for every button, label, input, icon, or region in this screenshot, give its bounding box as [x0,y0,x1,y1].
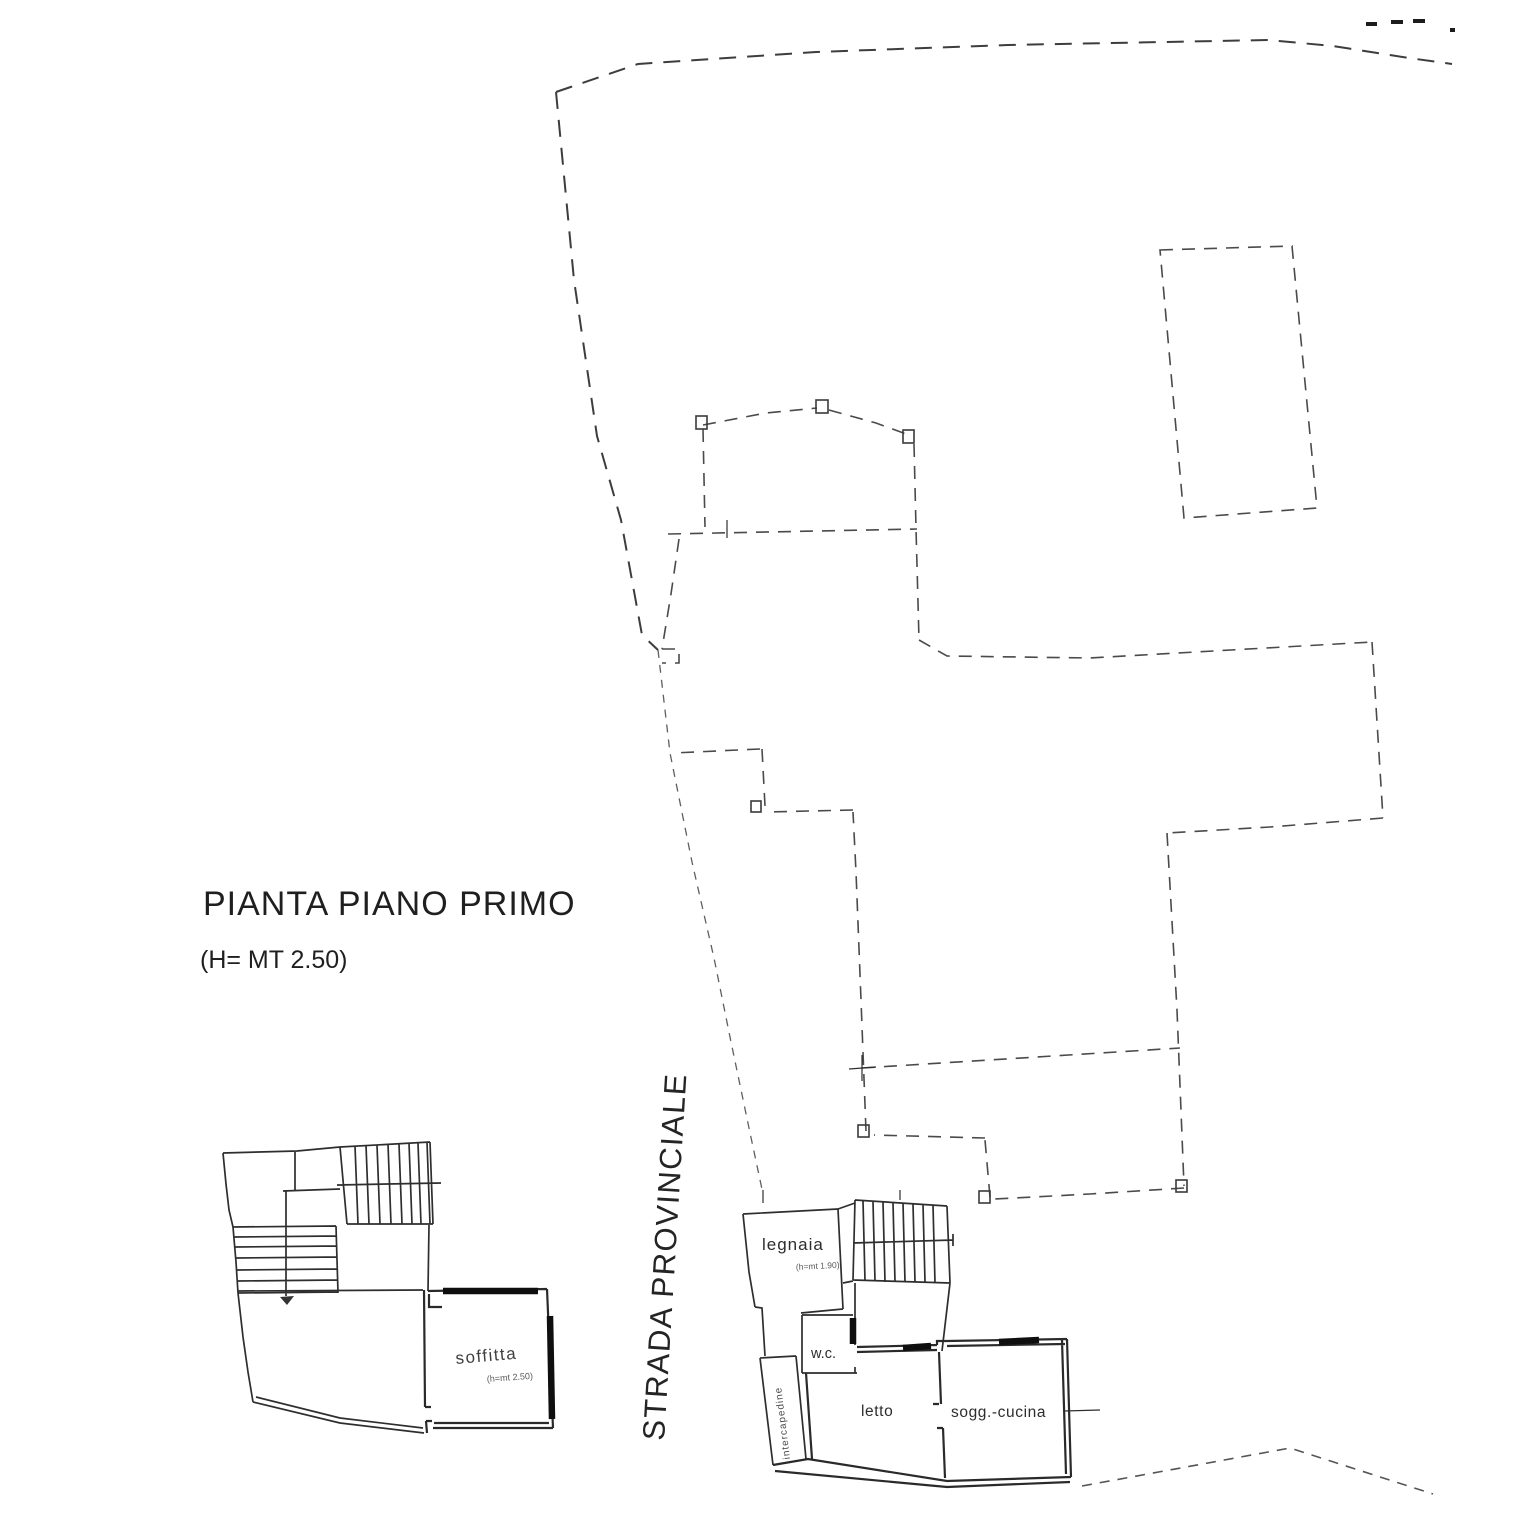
attic-plan [223,1142,553,1433]
attic-stair-risers [355,1142,430,1224]
soffitta-label: soffitta [455,1344,518,1368]
survey-square-markers [696,400,1187,1203]
building-outline-dashed [668,408,1383,1199]
legnaia-height-note: (h=mt 1.90) [796,1260,840,1272]
plan-title: PIANTA PIANO PRIMO [203,885,576,923]
road-label: STRADA PROVINCIALE [636,1072,693,1442]
stair-direction-arrow [280,1296,294,1305]
sogg-cucina-label: sogg.-cucina [951,1404,1046,1421]
top-right-specks [1366,21,1455,30]
site-boundary-dashed [556,40,1452,650]
boundary-branch-dashed [662,539,679,663]
legnaia-walls [743,1209,843,1356]
intercapedine-label: intercapedine [773,1386,793,1460]
parcel-rectangle-dashed [1160,246,1317,518]
survey-tick-marks [727,520,900,1203]
wc-walls [802,1315,857,1373]
letto-label: letto [861,1403,893,1420]
attic-stair-treads [233,1152,340,1296]
floor-plan-sheet: PIANTA PIANO PRIMO (H= MT 2.50) STRADA P… [0,0,1521,1536]
labels: PIANTA PIANO PRIMO (H= MT 2.50) STRADA P… [200,885,1046,1460]
legnaia-label: legnaia [762,1235,824,1254]
wc-label: w.c. [810,1346,836,1362]
soffitta-height-note: (h=mt 2.50) [486,1371,533,1384]
plan-drawing: PIANTA PIANO PRIMO (H= MT 2.50) STRADA P… [0,0,1521,1536]
bottom-right-dashed-line [1082,1448,1433,1494]
plan-height-note: (H= MT 2.50) [200,946,348,974]
